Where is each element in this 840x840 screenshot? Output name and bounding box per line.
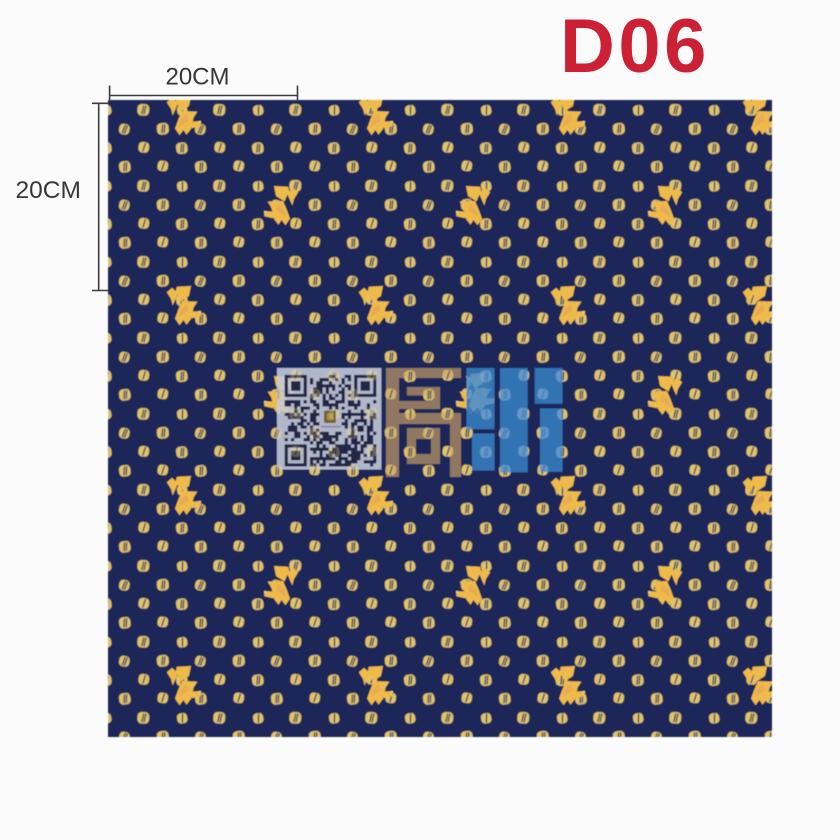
- svg-text:20CM: 20CM: [165, 64, 229, 91]
- svg-text:D06: D06: [560, 4, 710, 89]
- svg-text:20CM: 20CM: [16, 177, 81, 204]
